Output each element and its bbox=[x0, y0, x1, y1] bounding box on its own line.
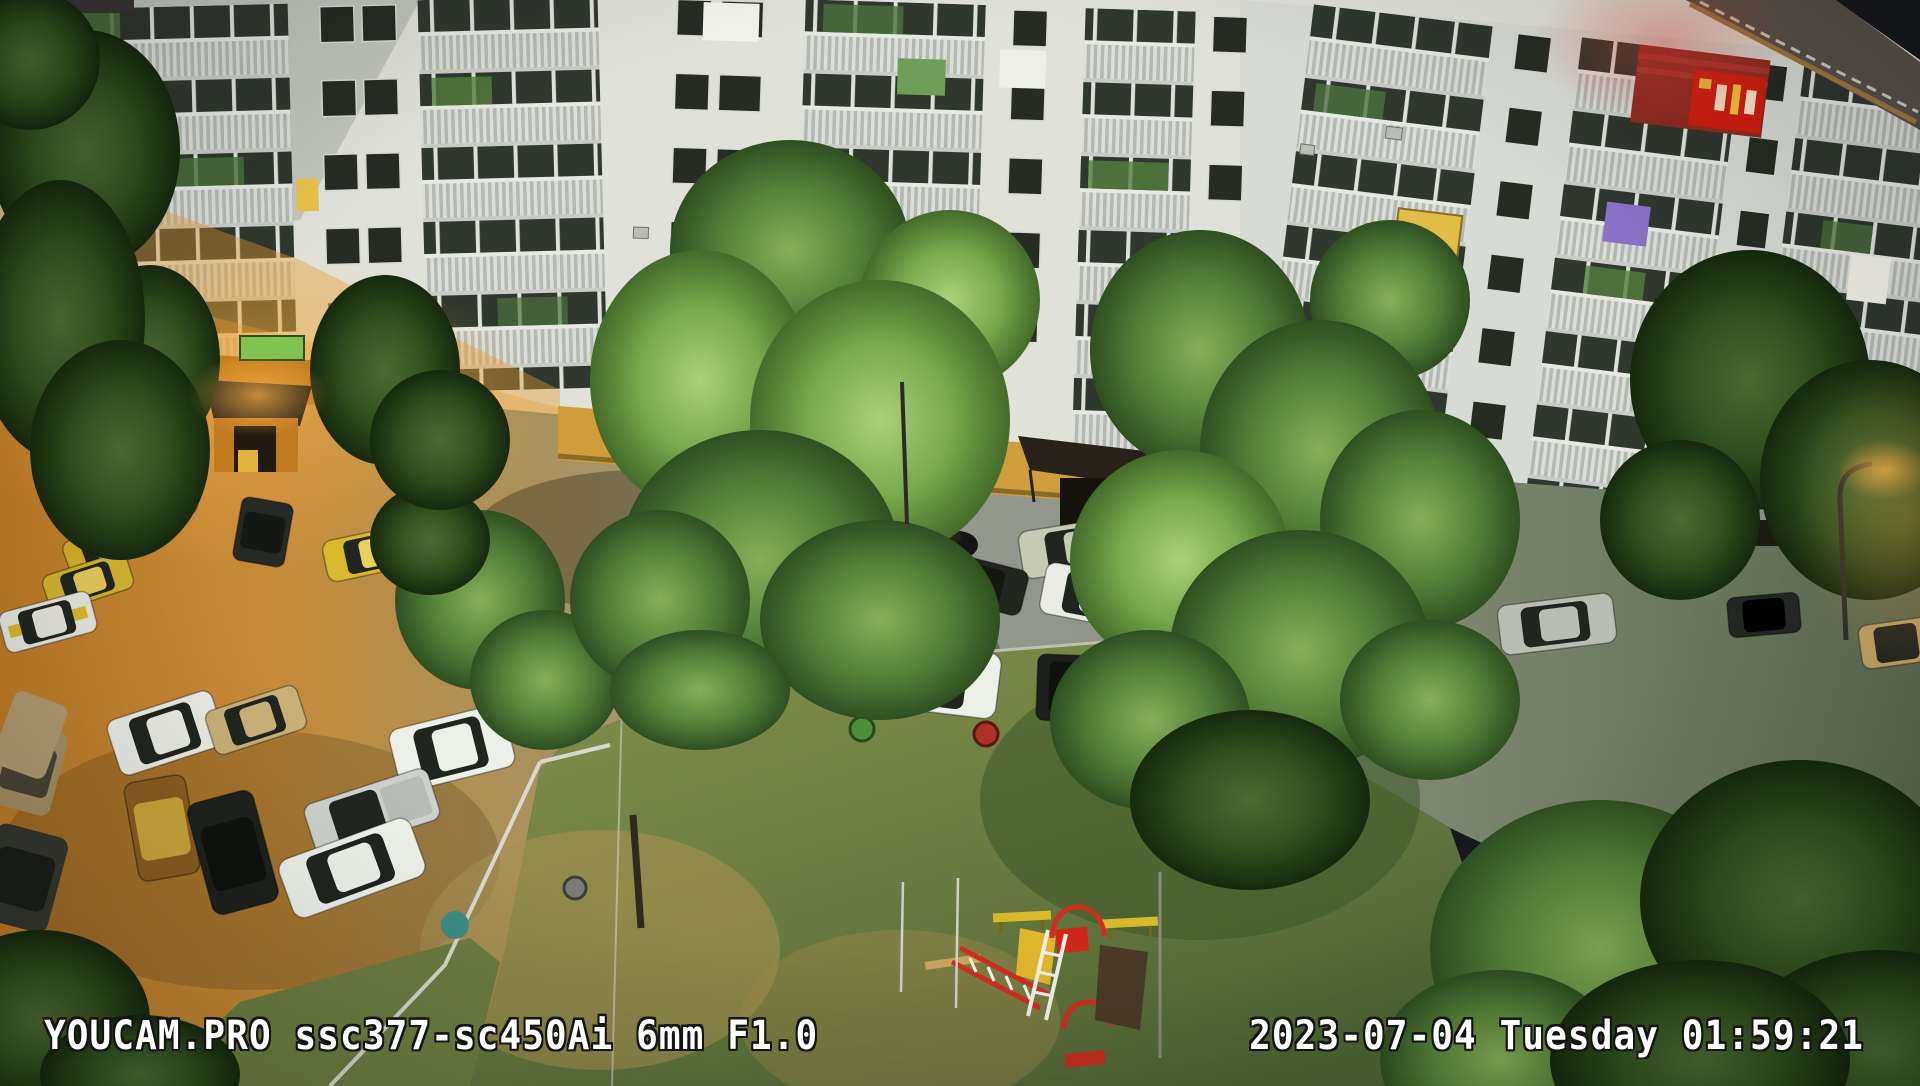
car-dark bbox=[1726, 592, 1801, 638]
cctv-frame: YOUCAM.PRO ssc377-sc450Ai 6mm F1.0 2023-… bbox=[0, 0, 1920, 1086]
window-green-lit bbox=[897, 58, 946, 95]
window-purple-lit bbox=[1602, 202, 1651, 247]
ac-unit bbox=[1385, 126, 1402, 140]
window-white-lit bbox=[1846, 254, 1891, 305]
courtyard-scene bbox=[0, 0, 1920, 1086]
window-green-lit bbox=[432, 76, 493, 106]
entrance-lamp-glow bbox=[188, 353, 328, 437]
window-yellow-lit bbox=[296, 179, 319, 212]
window-green-lit bbox=[174, 157, 245, 187]
window-white-lit bbox=[999, 49, 1046, 88]
osd-timestamp: 2023-07-04 Tuesday 01:59:21 bbox=[1249, 1013, 1864, 1059]
window-green-lit bbox=[823, 4, 904, 34]
ac-unit bbox=[1300, 144, 1315, 156]
car-dark-van bbox=[232, 496, 294, 568]
ac-unit bbox=[633, 227, 648, 238]
window-green-lit bbox=[1088, 160, 1169, 190]
window-green-lit bbox=[497, 296, 568, 326]
osd-camera-info: YOUCAM.PRO ssc377-sc450Ai 6mm F1.0 bbox=[44, 1013, 818, 1059]
ramp bbox=[1095, 945, 1148, 1030]
window-white-lit bbox=[703, 2, 760, 42]
